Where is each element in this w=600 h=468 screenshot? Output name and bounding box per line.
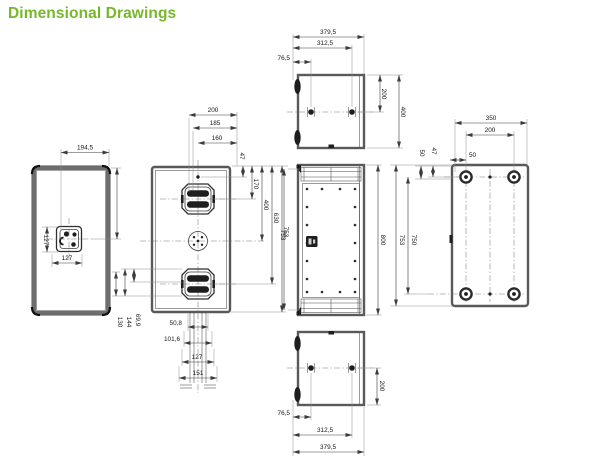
- dim-label-connector-height: 127: [42, 235, 49, 246]
- rear-view: 350 200 50 50 47 753 750: [390, 115, 528, 306]
- dim-label-top-width-1: 379,5: [320, 29, 336, 36]
- dim-label-rear-side-1: 50: [418, 149, 425, 157]
- dim-label-side-width: 194,5: [77, 145, 93, 152]
- dim-label-center-top-2: 185: [210, 120, 221, 127]
- dim-label-bottom-width-2: 312,5: [317, 427, 333, 434]
- dim-label-center-top-1: 200: [208, 107, 219, 114]
- dim-label-rear-top-1: 350: [486, 115, 497, 122]
- dim-label-center-bottom-4: 151: [193, 370, 204, 377]
- dim-label-front-outer-height: 800: [379, 235, 386, 246]
- dim-label-center-left-2: 144: [125, 317, 132, 328]
- dim-label-center-bottom-2: 101,6: [164, 336, 180, 343]
- bottom-view: 76,5 312,5 379,5 200: [278, 331, 385, 456]
- dimensional-drawings-page: { "title": "Dimensional Drawings", "colo…: [0, 0, 600, 468]
- dim-label-top-width-3: 76,5: [278, 55, 291, 62]
- side-left-view: 194,5 127 127: [32, 145, 121, 316]
- dim-label-center-right-1: 170: [252, 179, 259, 190]
- dim-label-center-right-2: 400: [262, 200, 269, 211]
- dim-label-rear-top-3: 50: [469, 152, 477, 159]
- dim-label-center-bottom-3: 127: [192, 354, 203, 361]
- dim-label-center-right-3: 630: [272, 213, 279, 224]
- dim-label-front-inner-height: 753: [279, 230, 286, 241]
- dim-label-bottom-width-1: 76,5: [278, 410, 291, 417]
- dim-label-center-top-3: 160: [212, 135, 223, 142]
- dim-label-center-bottom-1: 50,8: [170, 320, 183, 327]
- dim-label-bottom-depth: 200: [378, 381, 385, 392]
- dim-label-connector-width: 127: [62, 255, 73, 262]
- dim-label-center-offset: 47: [238, 152, 245, 160]
- dimensional-drawing-canvas: 194,5 127 127: [0, 0, 600, 468]
- dim-label-rear-top-2: 200: [485, 127, 496, 134]
- dim-label-center-left-1: 130: [116, 317, 123, 328]
- dim-label-top-depth-1: 200: [380, 89, 387, 100]
- side-center-view: 200 185 160 47 170 400 630 753 130 144 6…: [112, 107, 289, 393]
- dim-label-top-width-2: 312,5: [317, 40, 333, 47]
- dim-label-center-left-3: 69,9: [134, 314, 141, 327]
- dim-label-top-depth-2: 400: [399, 107, 406, 118]
- dim-label-bottom-width-3: 379,5: [320, 444, 336, 451]
- dim-label-rear-side-2: 47: [430, 147, 437, 155]
- dim-label-rear-height-1: 753: [398, 235, 405, 246]
- top-view: 379,5 312,5 76,5 200 400: [278, 29, 406, 148]
- front-view: 753 800: [279, 165, 386, 315]
- dim-label-rear-height-2: 750: [410, 235, 417, 246]
